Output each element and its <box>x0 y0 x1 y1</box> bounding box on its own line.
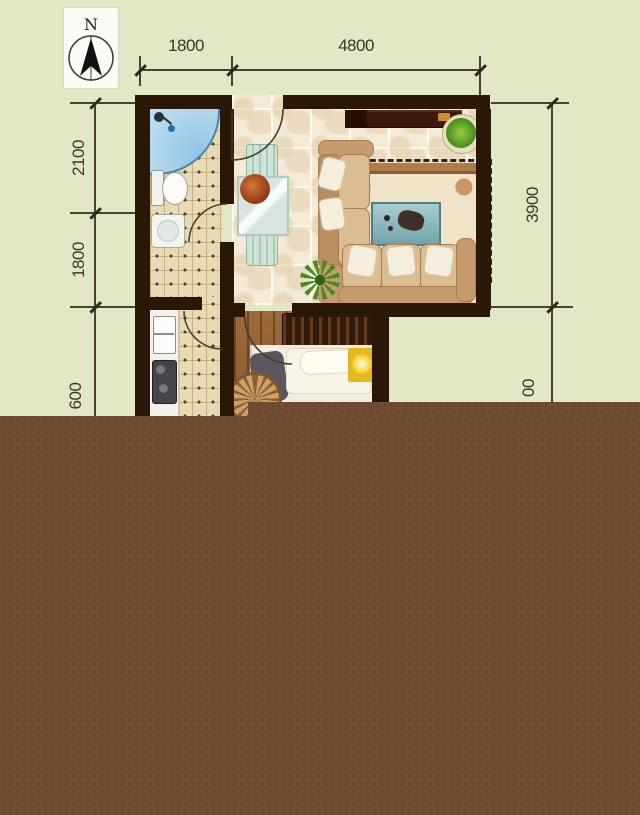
dimension-label-right-1: 3900 <box>523 183 543 227</box>
sofa-front-rail <box>338 286 474 304</box>
washbasin-bowl <box>157 220 179 242</box>
wall-right <box>476 109 491 310</box>
wall-top-right <box>283 95 490 109</box>
wall-bath-kitchen <box>150 297 202 310</box>
floorplan-page: { "compass": { "label": "N", "icon": "no… <box>0 0 640 815</box>
toilet <box>162 172 188 205</box>
nightstand-lamp <box>352 354 372 374</box>
extension-line <box>491 306 573 308</box>
stove-burner <box>159 384 168 393</box>
north-arrow-icon: N <box>64 8 118 88</box>
dimension-line-top <box>140 69 481 71</box>
pillow <box>386 245 417 278</box>
brown-overlay-main <box>0 416 640 815</box>
flower-centerpiece <box>240 174 270 204</box>
wall-living-bottom-left <box>234 303 245 317</box>
extension-line <box>479 56 481 98</box>
wall-bath-dining-upper <box>220 109 234 204</box>
pillow <box>423 244 455 278</box>
dimension-line-right <box>551 103 553 403</box>
compass-label: N <box>84 15 98 34</box>
extension-line <box>70 212 136 214</box>
extension-line <box>70 102 136 104</box>
coffee-table-decor-dot <box>384 215 390 221</box>
coffee-table-decor-dot <box>388 226 393 231</box>
headboard <box>282 313 380 347</box>
tv-cabinet-end <box>345 110 367 127</box>
wall-living-bottom-right <box>292 303 490 317</box>
dimension-line-left <box>94 103 96 417</box>
pillow <box>346 244 379 278</box>
stove-burner <box>156 365 165 374</box>
dimension-label-top-1: 1800 <box>146 36 226 56</box>
potted-plant <box>446 118 476 148</box>
pillow <box>318 196 346 231</box>
dimension-label-left-1: 2100 <box>69 136 89 180</box>
wall-bedroom-right <box>372 303 389 417</box>
extension-line <box>70 306 136 308</box>
compass-rose: N <box>64 8 118 88</box>
shower-knob-icon <box>168 125 175 132</box>
dimension-label-top-2: 4800 <box>316 36 396 56</box>
wall-left <box>135 95 150 417</box>
wall-bath-dining-lower <box>220 242 234 311</box>
sink <box>153 316 176 354</box>
extension-line <box>491 102 569 104</box>
wall-corridor-bedroom <box>220 311 234 417</box>
sink-divider <box>153 333 174 335</box>
dimension-label-left-2: 1800 <box>69 238 89 282</box>
sofa-armrest <box>456 238 476 302</box>
dimension-label-left-3: 600 <box>66 374 86 418</box>
palm-plant-center <box>315 275 325 285</box>
